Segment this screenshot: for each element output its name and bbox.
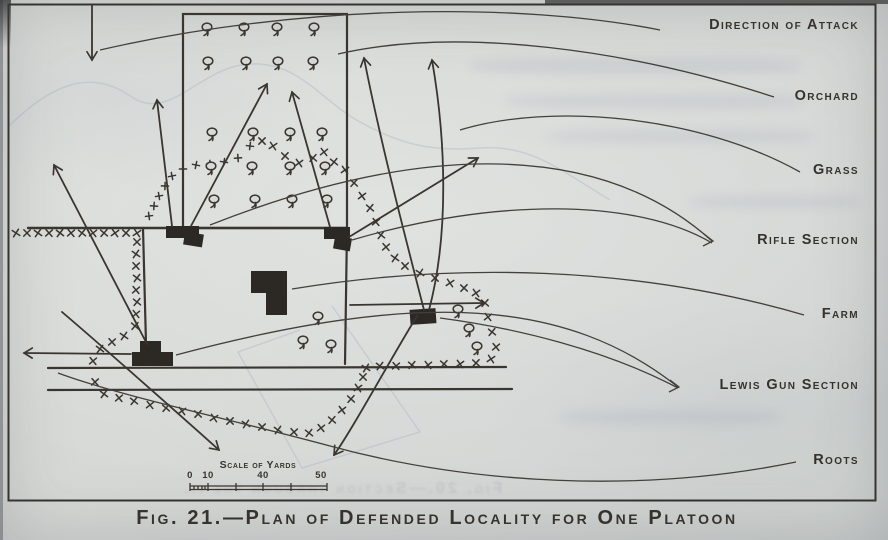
- tree-symbol: [464, 324, 474, 336]
- bleedthrough-linework: [238, 306, 420, 468]
- fire-right-lewis-n1: [364, 58, 424, 310]
- road-line: [48, 367, 506, 368]
- tree-symbol: [298, 336, 308, 348]
- tree-symbol: [207, 128, 217, 140]
- tree-symbol: [309, 23, 319, 35]
- scale-tick-50: 50: [312, 470, 330, 481]
- label-direction-of-attack: Direction of Attack: [709, 17, 859, 33]
- fire-right-rifle-ne: [349, 158, 478, 237]
- building-shape: [266, 290, 287, 315]
- label-rifle-section: Rifle Section: [757, 232, 859, 248]
- tree-symbol: [453, 305, 463, 317]
- building-shape: [132, 352, 173, 366]
- tree-symbol: [308, 57, 318, 69]
- fire-left-lewis-w: [24, 353, 131, 354]
- label-lewis-gun-section: Lewis Gun Section: [720, 377, 859, 393]
- tree-symbol: [203, 57, 213, 69]
- label-grass: Grass: [813, 162, 859, 178]
- fire-right-rifle-nw: [292, 92, 330, 227]
- tree-symbol: [209, 195, 219, 207]
- tree-symbol: [313, 312, 323, 324]
- road-line: [143, 228, 146, 344]
- tree-symbol: [247, 162, 257, 174]
- wire-x-marks: [12, 229, 141, 237]
- label-roots: Roots: [813, 452, 859, 468]
- tree-symbol: [206, 162, 216, 174]
- scale-tick-10: 10: [199, 470, 217, 481]
- label-leader-line: [210, 164, 712, 241]
- wire-x-marks: [92, 364, 370, 436]
- label-farm: Farm: [822, 306, 859, 322]
- label-leader-line: [460, 116, 800, 172]
- tree-symbol: [250, 195, 260, 207]
- bleedthrough-linework: [8, 64, 610, 200]
- road-line: [48, 389, 512, 390]
- label-leader-line: [292, 272, 804, 315]
- tree-symbol: [248, 128, 258, 140]
- tree-symbol: [326, 340, 336, 352]
- tree-symbol: [241, 57, 251, 69]
- label-orchard: Orchard: [795, 88, 859, 104]
- label-leader-line: [338, 42, 774, 97]
- building-shape: [183, 232, 204, 248]
- wire-x-marks: [90, 332, 128, 364]
- figure-caption: Fig. 21.—Plan of Defended Locality for O…: [136, 507, 738, 530]
- tree-symbol: [285, 162, 295, 174]
- figure-border: [9, 5, 876, 501]
- defence-plan-drawing: [0, 0, 888, 540]
- building-shape: [251, 271, 287, 293]
- scale-bar: [190, 483, 327, 491]
- tree-symbol: [272, 23, 282, 35]
- tree-symbol: [285, 128, 295, 140]
- tree-symbol: [320, 162, 330, 174]
- tree-symbol: [317, 128, 327, 140]
- fire-right-lewis-n2: [429, 60, 443, 310]
- tree-symbol: [273, 57, 283, 69]
- scale-tick-40: 40: [254, 470, 272, 481]
- scale-tick-0: 0: [181, 470, 199, 481]
- scanned-book-page: Fig. 20.—Section through the ... Directi…: [0, 0, 888, 540]
- fire-east: [350, 303, 484, 305]
- fire-left-rifle-n: [157, 100, 172, 226]
- tree-symbol: [472, 342, 482, 354]
